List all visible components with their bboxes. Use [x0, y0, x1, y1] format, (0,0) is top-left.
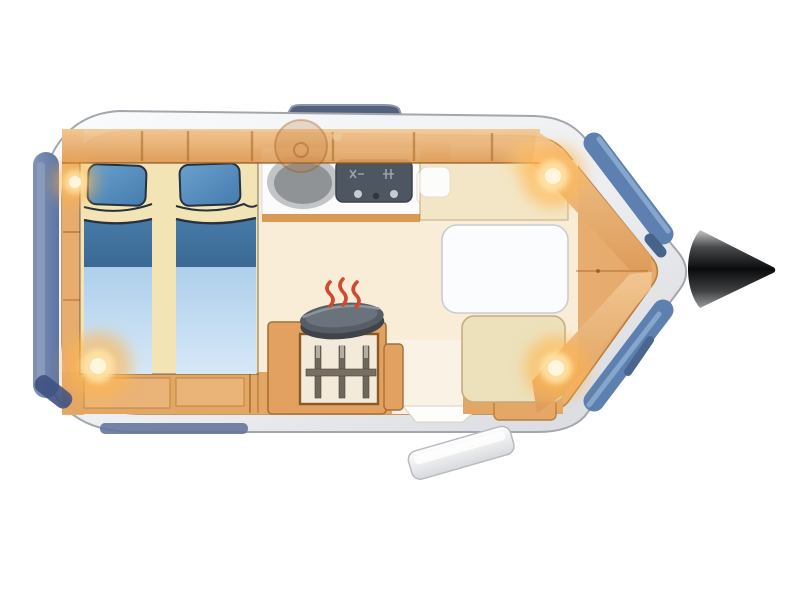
rod-bar	[306, 369, 376, 376]
counter-front-edge	[262, 214, 420, 222]
ceiling-light-rear-top	[53, 160, 97, 204]
pillow-right	[179, 163, 240, 206]
floorplan-canvas	[0, 0, 800, 600]
caravan-floorplan-illustration	[0, 0, 800, 600]
tow-hitch-cone	[688, 230, 775, 308]
dinette-table	[442, 225, 568, 313]
drawer-panel-2	[176, 378, 244, 406]
blanket-right-light	[176, 267, 256, 374]
blanket-right-dark	[176, 218, 256, 268]
blanket-left-dark	[84, 219, 152, 268]
ceiling-light-rear-bottom	[64, 332, 132, 400]
ceiling-light-front-bottom	[524, 336, 588, 400]
island-side-wing	[384, 344, 403, 410]
bottle-rods	[306, 346, 376, 398]
bottom-trim-strip	[100, 423, 248, 434]
seat-pad	[420, 167, 450, 197]
stove	[336, 160, 412, 202]
